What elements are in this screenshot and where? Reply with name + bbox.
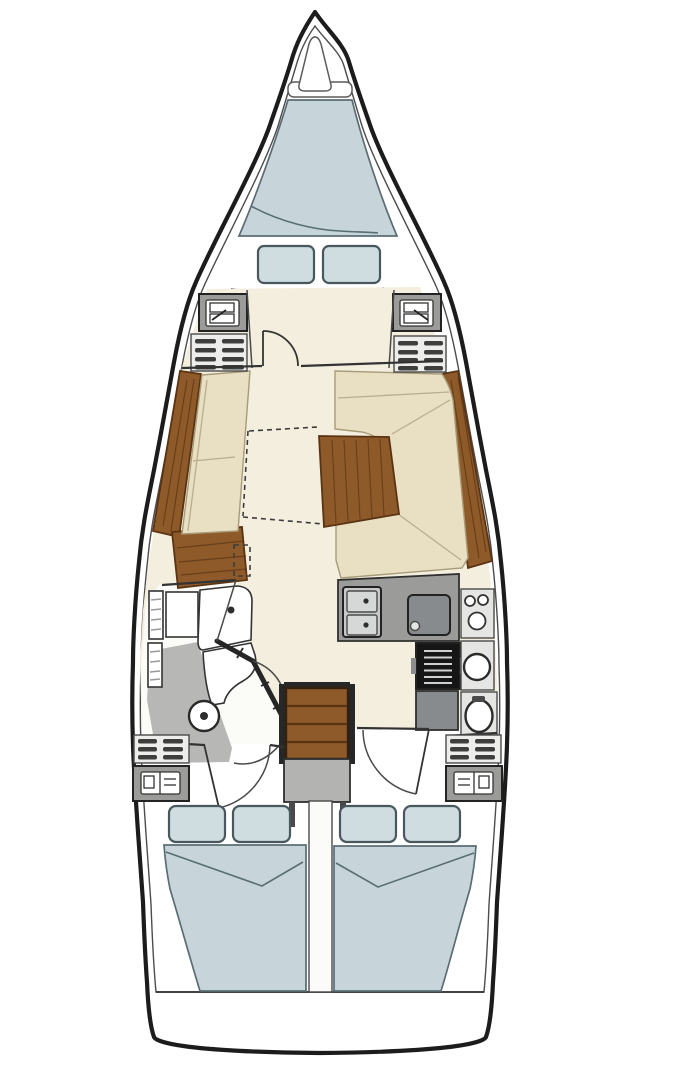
sink-drain-bottom <box>363 622 368 627</box>
sink-drain-top <box>363 598 368 603</box>
hob-burner-small-right <box>478 595 488 605</box>
basin-hinge <box>472 696 485 702</box>
toilet-drain <box>200 712 208 720</box>
hob-burner-small-left <box>465 596 475 606</box>
companionway-landing <box>284 759 350 802</box>
oven-gimbal-left <box>411 658 416 674</box>
floor-plan-svg <box>0 0 675 1080</box>
saloon-table <box>319 436 399 527</box>
hull-locker-upper <box>149 591 163 639</box>
vberth-pillow-port <box>258 246 314 283</box>
sink-basin-bottom <box>347 615 377 635</box>
hob-burner-large <box>469 613 486 630</box>
round-sink <box>464 654 490 680</box>
aft-pillow-starboard-1 <box>340 806 396 842</box>
head-cabinet <box>166 592 198 637</box>
center-divider <box>309 801 332 992</box>
galley-cabinet <box>416 691 458 730</box>
sink-basin-top <box>347 591 377 612</box>
aft-pillow-port-1 <box>169 806 225 842</box>
aft-pillow-starboard-2 <box>404 806 460 842</box>
galley-aft-wall <box>357 728 429 729</box>
wash-basin <box>466 700 493 732</box>
table-top <box>319 436 399 527</box>
vanity-counter <box>198 586 252 650</box>
vberth-pillow-starboard <box>323 246 380 283</box>
companionway-rail-left <box>279 684 285 764</box>
aft-pillow-port-2 <box>233 806 290 842</box>
floor-plan-page <box>0 0 675 1080</box>
fridge-lid-latch <box>411 622 420 631</box>
vanity-drain <box>228 607 235 614</box>
companionway-rail-right <box>349 684 355 764</box>
